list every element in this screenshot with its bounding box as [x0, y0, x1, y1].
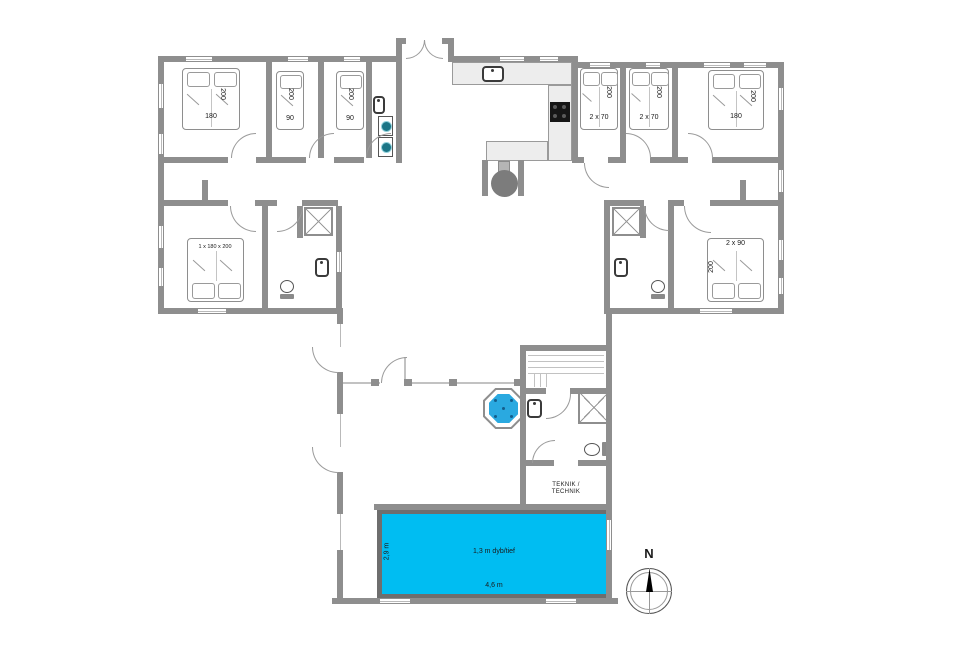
wall-segment [337, 550, 343, 604]
wall-segment [482, 160, 488, 196]
wall-segment [337, 472, 343, 514]
kitchen-counter-bottom [486, 141, 548, 161]
pool-width-label: 2,9 m [384, 539, 391, 565]
door-arc [688, 133, 713, 158]
door-arc [312, 447, 338, 473]
window-segment [338, 514, 341, 550]
hot-tub-icon [483, 388, 524, 429]
sink-icon [373, 96, 385, 114]
wall-segment [520, 345, 612, 351]
wall-segment [710, 200, 784, 206]
sink-icon [614, 258, 628, 277]
wood-stove-icon [491, 170, 518, 197]
door-arc [230, 206, 256, 232]
window-segment [540, 57, 558, 61]
pool-depth-label: 1,3 m dyb/tief [444, 548, 544, 555]
window-segment [779, 240, 783, 260]
wall-cap [371, 379, 379, 386]
window-segment [744, 63, 766, 67]
sink-icon [315, 258, 329, 277]
window-segment [704, 63, 730, 67]
wall-segment [158, 308, 343, 314]
bed-size-label: 2 x 70 [629, 114, 669, 122]
window-segment [779, 170, 783, 192]
thin-partition [528, 367, 604, 368]
bed-length-label: 200 [286, 84, 294, 104]
window-segment [338, 324, 341, 347]
door-arc [381, 357, 407, 383]
window-segment [288, 57, 308, 61]
thin-partition [546, 374, 547, 387]
bed-length-label: 200 [654, 82, 662, 102]
door-arc [546, 394, 571, 419]
wall-segment [334, 157, 364, 163]
window-segment [344, 57, 360, 61]
wall-segment [572, 157, 584, 163]
bed-length-label: 200 [604, 82, 612, 102]
wall-segment [604, 206, 610, 308]
door-arc [644, 206, 669, 231]
window-segment [198, 309, 226, 313]
door-arc [684, 206, 711, 233]
compass: N [618, 546, 680, 616]
bed-length-label: 200 [218, 84, 226, 104]
window-segment [338, 414, 341, 447]
wall-segment [604, 308, 784, 314]
bed-size-label: 180 [708, 113, 764, 121]
bed-size-label: 180 [182, 113, 240, 121]
window-segment [779, 278, 783, 294]
bed-size-label: 2 x 70 [580, 114, 618, 122]
bed-size-label: 1 x 180 x 200 [183, 243, 247, 251]
window-segment [607, 520, 611, 550]
pool-length-label: 4,6 m [474, 582, 514, 589]
bed-size-label: 90 [336, 115, 364, 123]
wall-segment [202, 180, 208, 206]
door-arc [312, 347, 338, 373]
window-segment [159, 134, 163, 154]
wall-segment [396, 38, 402, 163]
window-segment [159, 84, 163, 108]
wall-segment [396, 38, 406, 44]
bed-size-label: 90 [276, 115, 304, 123]
bed-length-label: 200 [346, 84, 354, 104]
wall-segment [572, 56, 578, 163]
wall-segment [608, 157, 626, 163]
bed-length-label: 200 [748, 86, 756, 106]
window-segment [700, 309, 732, 313]
door-arc [309, 133, 334, 158]
thin-partition [528, 355, 604, 356]
wall-segment [606, 308, 612, 604]
kitchen-counter-right [548, 85, 572, 161]
sink-icon [527, 399, 542, 418]
thin-partition [534, 374, 535, 387]
wall-segment [337, 314, 343, 324]
wall-segment [262, 206, 268, 308]
wall-segment [374, 504, 612, 510]
thin-partition [528, 361, 604, 362]
wall-segment [164, 157, 228, 163]
wall-cap [449, 379, 457, 386]
compass-north-label: N [618, 546, 680, 561]
door-arc [231, 133, 256, 158]
door-arc [424, 40, 443, 59]
floor-plan: 180 200 90 200 90 200 1 x 180 x 200 2 x … [0, 0, 959, 667]
wall-segment [256, 157, 306, 163]
window-segment [380, 599, 410, 603]
wall-segment [520, 388, 546, 394]
door-arc [626, 133, 651, 158]
wall-segment [266, 62, 272, 158]
kitchen-counter-top [452, 62, 572, 85]
wall-segment [302, 200, 338, 206]
shower-icon [304, 207, 333, 236]
wall-segment [164, 200, 228, 206]
wall-cap [514, 379, 522, 386]
door-arc [584, 163, 609, 188]
door-arc [532, 440, 555, 463]
window-segment [186, 57, 212, 61]
kitchen-sink [482, 66, 504, 82]
window-segment [159, 226, 163, 248]
wall-segment [518, 160, 524, 196]
wall-segment [672, 62, 678, 158]
technik-room-label: TEKNIK / TECHNIK [524, 482, 608, 496]
window-segment [546, 599, 576, 603]
thin-partition [406, 382, 522, 384]
door-arc [406, 40, 425, 59]
cooktop-icon [550, 102, 570, 122]
wall-segment [740, 180, 746, 206]
bed-size-label: 2 x 90 [707, 240, 764, 248]
window-segment [590, 63, 610, 67]
window-segment [646, 63, 660, 67]
window-segment [779, 88, 783, 110]
window-segment [337, 252, 341, 272]
wall-segment [604, 200, 644, 206]
bed-length-label: 200 [708, 257, 716, 277]
wall-segment [712, 157, 784, 163]
wall-segment [520, 345, 526, 504]
wall-segment [337, 372, 343, 414]
thin-partition [540, 374, 541, 387]
toilet-icon [279, 280, 295, 300]
wall-segment [650, 157, 688, 163]
window-segment [500, 57, 524, 61]
toilet-icon [650, 280, 666, 300]
window-segment [159, 268, 163, 286]
shower-icon [612, 207, 641, 236]
